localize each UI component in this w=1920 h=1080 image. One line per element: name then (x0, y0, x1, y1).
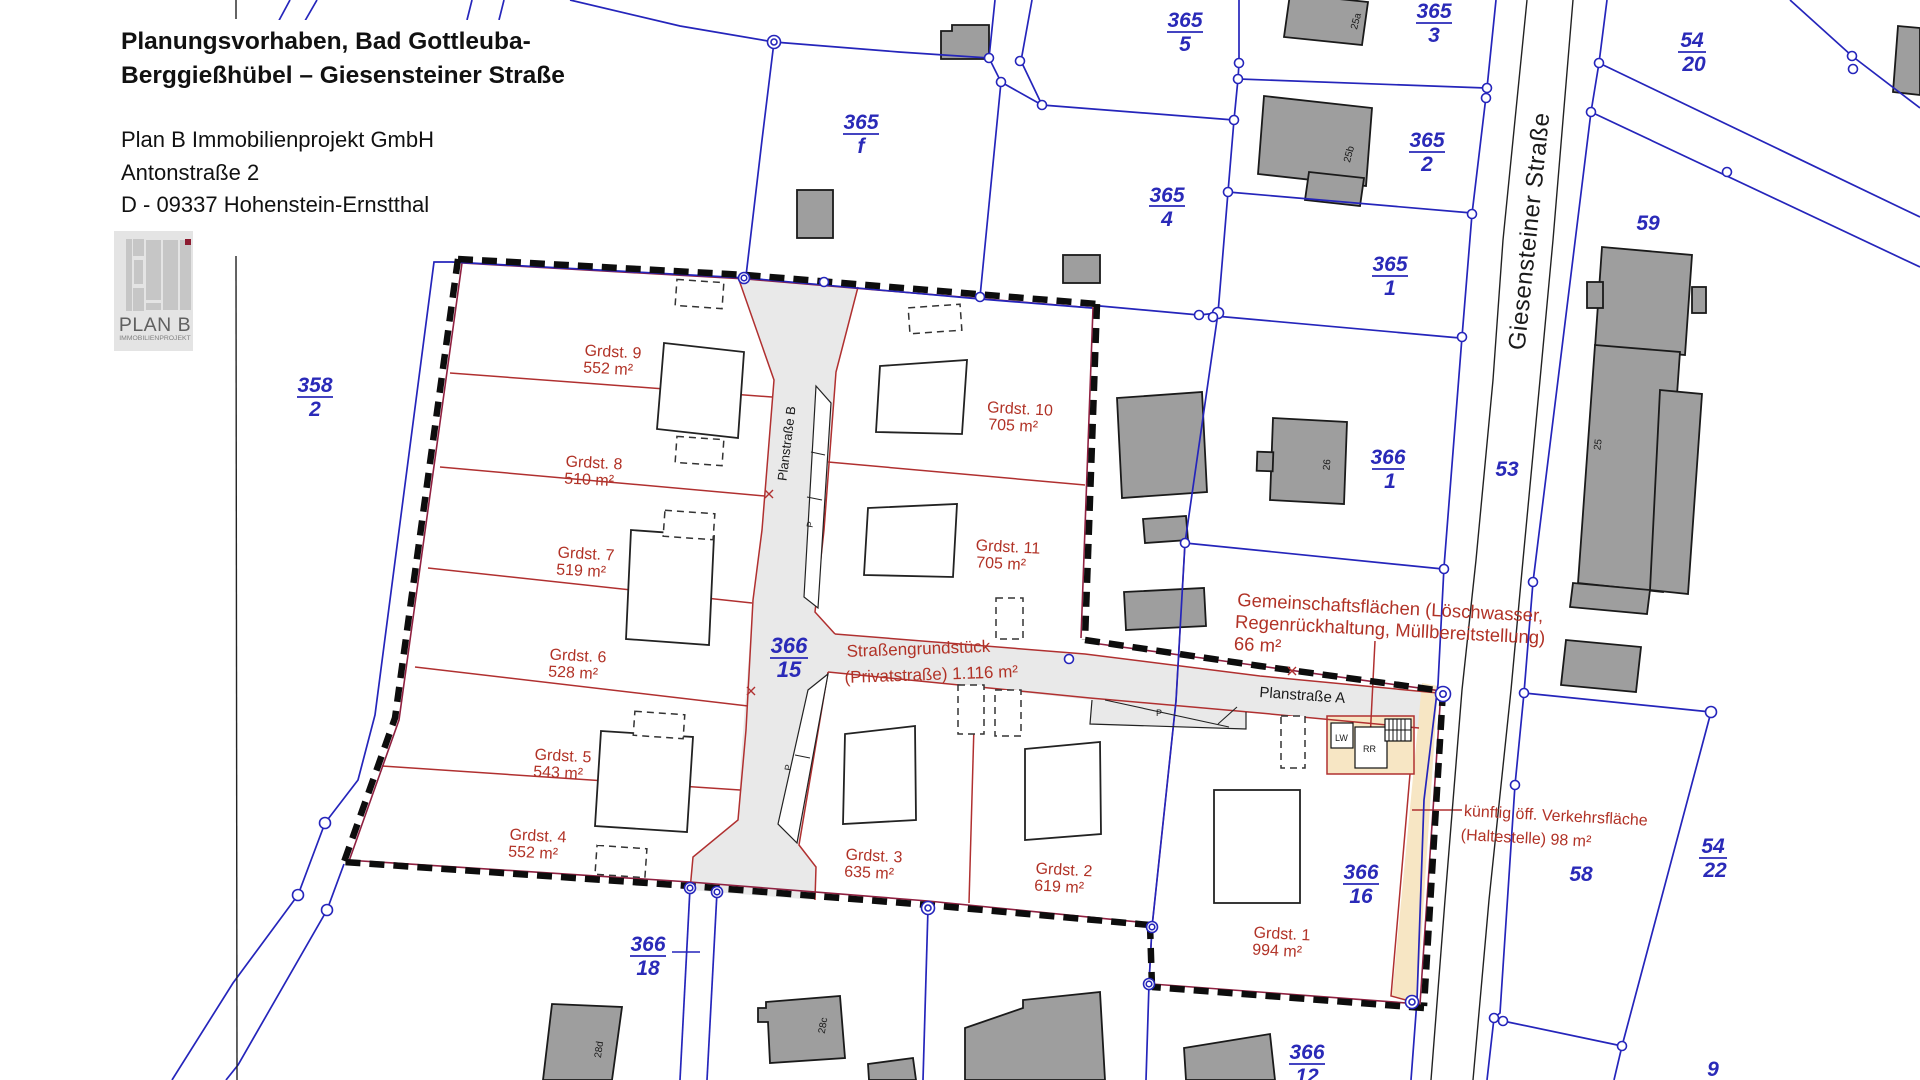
svg-text:66 m²: 66 m² (1233, 633, 1281, 656)
svg-text:LW: LW (1335, 733, 1348, 743)
svg-text:22: 22 (1702, 859, 1727, 882)
svg-text:994 m²: 994 m² (1252, 941, 1303, 961)
svg-text:58: 58 (1569, 863, 1593, 886)
svg-text:54: 54 (1701, 835, 1725, 858)
svg-text:59: 59 (1636, 212, 1660, 235)
svg-text:366: 366 (1343, 861, 1378, 884)
svg-text:15: 15 (777, 657, 802, 682)
svg-text:IMMOBILIENPROJEKT: IMMOBILIENPROJEKT (119, 335, 190, 342)
svg-text:3: 3 (1428, 24, 1440, 47)
svg-text:9: 9 (1707, 1058, 1719, 1080)
svg-text:552 m²: 552 m² (508, 843, 559, 863)
svg-text:365: 365 (1416, 0, 1451, 23)
svg-text:366: 366 (630, 933, 665, 956)
svg-text:P: P (1156, 708, 1162, 718)
svg-text:365: 365 (843, 111, 878, 134)
svg-text:53: 53 (1495, 458, 1519, 481)
svg-text:519 m²: 519 m² (556, 561, 607, 581)
svg-text:365: 365 (1372, 253, 1407, 276)
svg-text:365: 365 (1409, 129, 1444, 152)
svg-text:Planungsvorhaben, Bad Gottleub: Planungsvorhaben, Bad Gottleuba- (121, 28, 531, 55)
svg-text:366: 366 (1370, 446, 1405, 469)
svg-text:366: 366 (1289, 1041, 1324, 1064)
svg-text:1: 1 (1384, 277, 1396, 300)
svg-text:528 m²: 528 m² (548, 663, 599, 683)
svg-text:Antonstraße 2: Antonstraße 2 (121, 160, 259, 185)
svg-text:365: 365 (1167, 9, 1202, 32)
svg-text:12: 12 (1295, 1065, 1319, 1080)
svg-text:26: 26 (1322, 458, 1334, 470)
svg-text:2: 2 (308, 398, 321, 421)
svg-text:705 m²: 705 m² (988, 416, 1039, 436)
svg-text:543 m²: 543 m² (533, 763, 584, 783)
svg-text:PLAN B: PLAN B (119, 314, 191, 336)
svg-text:619 m²: 619 m² (1034, 877, 1085, 897)
svg-text:358: 358 (297, 374, 332, 397)
svg-text:Berggießhübel – Giesensteiner: Berggießhübel – Giesensteiner Straße (121, 62, 565, 89)
svg-text:1: 1 (1384, 470, 1396, 493)
svg-text:552 m²: 552 m² (583, 359, 634, 379)
svg-text:25: 25 (1592, 438, 1605, 451)
svg-text:366: 366 (771, 633, 808, 658)
svg-text:28d: 28d (593, 1041, 606, 1059)
svg-text:4: 4 (1160, 208, 1173, 231)
svg-text:5: 5 (1179, 33, 1191, 56)
svg-text:2: 2 (1420, 153, 1433, 176)
svg-text:510 m²: 510 m² (564, 470, 615, 490)
svg-text:RR: RR (1363, 744, 1376, 754)
svg-text:D - 09337 Hohenstein-Ernstthal: D - 09337 Hohenstein-Ernstthal (121, 192, 429, 217)
svg-text:20: 20 (1681, 53, 1706, 76)
svg-text:54: 54 (1680, 29, 1704, 52)
svg-text:365: 365 (1149, 184, 1184, 207)
svg-text:16: 16 (1349, 885, 1373, 908)
svg-text:705 m²: 705 m² (976, 554, 1027, 574)
svg-text:635 m²: 635 m² (844, 863, 895, 883)
svg-text:Plan B Immobilienprojekt GmbH: Plan B Immobilienprojekt GmbH (121, 127, 434, 152)
svg-text:18: 18 (636, 957, 660, 980)
